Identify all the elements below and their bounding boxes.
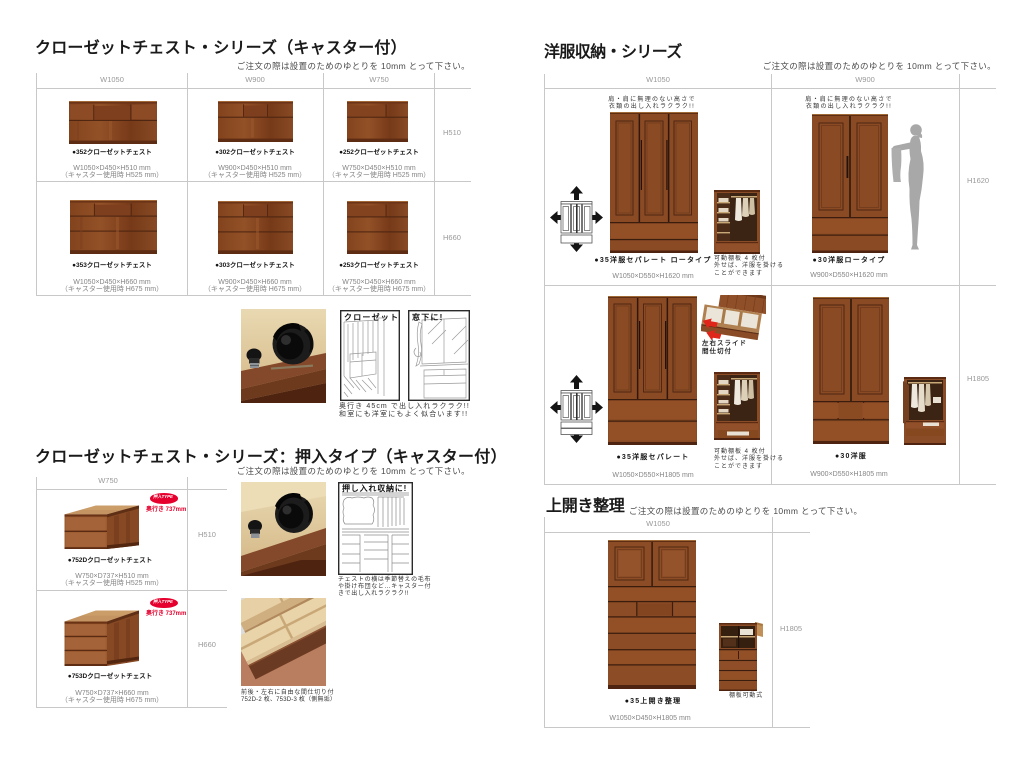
svg-text:クローゼットに!: クローゼットに! — [344, 312, 400, 322]
svg-text:押し入れ収納に!: 押し入れ収納に! — [342, 483, 407, 493]
svg-text:窓下に!: 窓下に! — [412, 312, 443, 322]
